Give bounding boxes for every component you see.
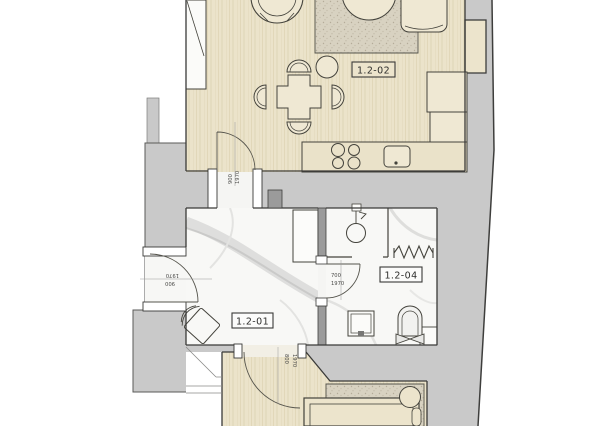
room-label-living-text: 1.2-02 (357, 66, 390, 77)
sofa (401, 0, 447, 32)
room-label-bathroom-text: 1.2-04 (384, 271, 417, 282)
living-door-width: 900 (228, 174, 234, 184)
room-label-bathroom: 1.2-04 (380, 267, 422, 282)
bedside-table (400, 387, 421, 408)
room-label-hallway: 1.2-01 (232, 313, 273, 328)
pouf (316, 56, 338, 78)
room-label-hallway-text: 1.2-01 (236, 317, 269, 328)
room-living-kitchen: 1.2-02 (186, 0, 486, 172)
bench (412, 408, 421, 426)
door-frame (234, 344, 242, 358)
wall-niche (465, 20, 486, 73)
partition-wall (318, 304, 326, 345)
hall-cabinet (293, 210, 318, 262)
bathroom-door-height: 1970 (331, 281, 344, 287)
partition-wall (318, 208, 326, 256)
door-frame (143, 302, 186, 311)
washing-machine (348, 311, 374, 336)
wardrobe (186, 0, 206, 89)
door-frame (298, 344, 306, 358)
door-frame (316, 298, 327, 306)
entrance-door-height: 1970 (166, 272, 179, 278)
door-frame (208, 169, 217, 210)
living-door-height: 1970 (235, 171, 241, 184)
kitchen-sink (384, 146, 410, 167)
door-frame (253, 169, 262, 210)
exterior-steps (186, 347, 222, 393)
bedroom-door-height: 1970 (291, 354, 297, 367)
floor-plan: 1.2-02 900 1970 1.2-01 (0, 0, 600, 426)
floor-plan-canvas: 1.2-02 900 1970 1.2-01 (0, 0, 600, 426)
room-hallway: 1.2-01 (177, 208, 320, 345)
room-label-living: 1.2-02 (352, 62, 395, 77)
exterior-wall-strip (147, 98, 159, 144)
wall-pier (268, 190, 282, 208)
entrance-door-width: 900 (165, 280, 175, 286)
bathroom-door-width: 700 (331, 273, 341, 279)
bedroom-door-width: 800 (283, 354, 289, 364)
door-frame (143, 247, 186, 256)
door-frame (316, 256, 327, 264)
